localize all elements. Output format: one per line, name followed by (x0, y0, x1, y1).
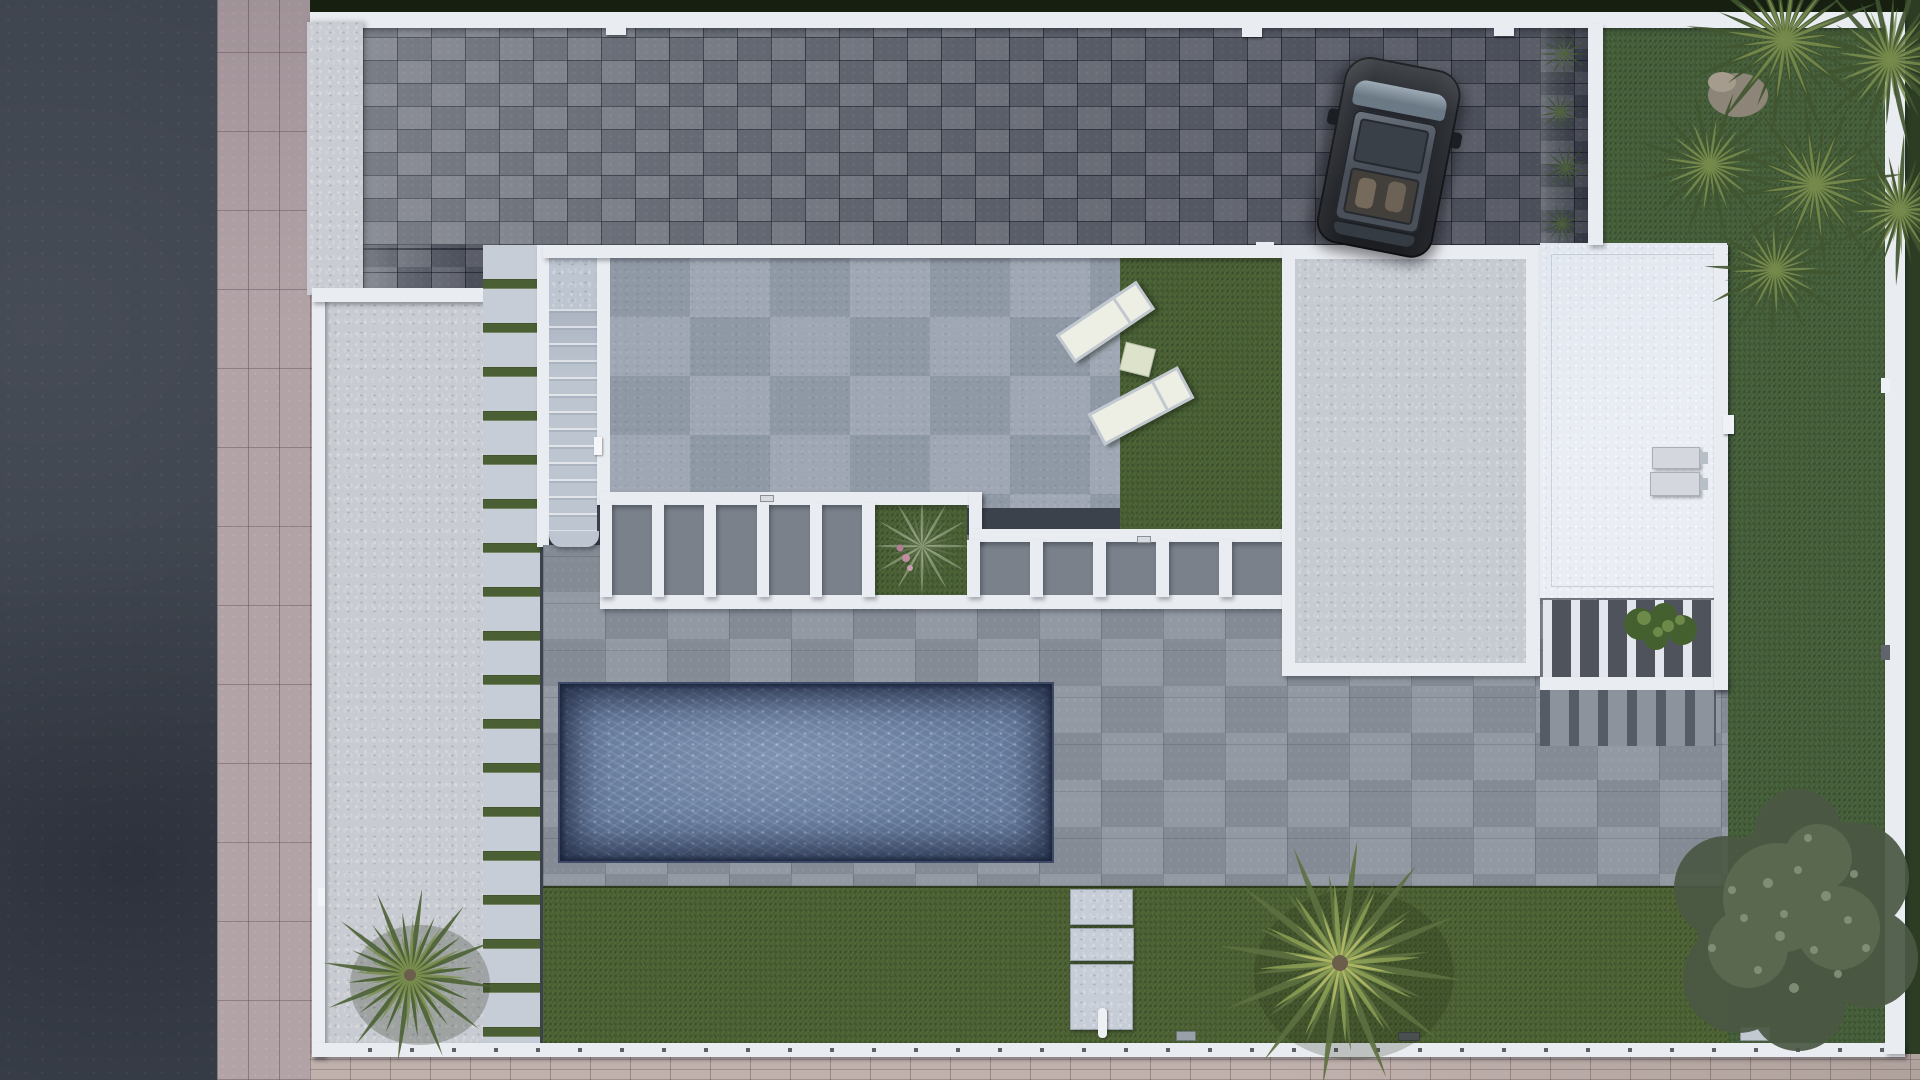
pergola-post (1093, 540, 1106, 597)
driveway-shrub (1536, 28, 1592, 248)
wall-cap (606, 26, 626, 35)
lawn-drain (1176, 1031, 1196, 1041)
pergola-post (600, 503, 612, 597)
ac-unit (1652, 447, 1700, 469)
asphalt-road (0, 0, 217, 1080)
pergola-floor-right (967, 535, 1282, 598)
yucca-palm-cluster (1600, 0, 1920, 300)
roof-terrace (610, 258, 1122, 508)
wall-cap (1494, 27, 1514, 36)
pergola-beam-bottom (600, 595, 1295, 609)
pergola-post (810, 503, 822, 597)
terrace-door-handle (594, 437, 602, 455)
pergola-cap (1137, 536, 1151, 543)
swimming-pool (558, 682, 1054, 863)
pergola-post (967, 540, 980, 597)
garden-tree (1648, 778, 1920, 1068)
pergola-post (1219, 540, 1232, 597)
pergola-post (1030, 540, 1043, 597)
palm-tree-south-west (318, 883, 502, 1067)
wall-cap (1242, 28, 1262, 37)
lawn-south (543, 883, 1728, 1043)
ac-unit (1650, 472, 1700, 496)
garden-faucet (1098, 1008, 1107, 1038)
entrance-pillar (307, 22, 363, 295)
wall-path-east (537, 245, 549, 547)
east-wall-latch (1723, 415, 1734, 434)
pergola-beam-top-right (969, 529, 1295, 542)
ac-pipe (1700, 452, 1708, 464)
house-parapet-east (1714, 245, 1728, 690)
sidewalk-left (217, 0, 312, 1080)
stepping-pad (1070, 928, 1134, 961)
right-wall-latch (1881, 378, 1890, 393)
wall-stairs-east (597, 247, 611, 505)
wall-courtyard-north (312, 288, 483, 302)
lounger-headrest-divider (1113, 298, 1131, 323)
staircase-end (549, 531, 599, 547)
palm-tree-south-center (1210, 833, 1470, 1080)
patio-plants (1612, 596, 1712, 660)
agave-plant (872, 496, 972, 596)
patio-shadow-stripes (1540, 690, 1716, 746)
staircase (549, 309, 597, 535)
pergola-post (1156, 540, 1169, 597)
lounger-headrest-divider (1152, 382, 1169, 410)
stepping-pad (1070, 889, 1133, 925)
pergola-post (704, 503, 716, 597)
aerial-villa-render (0, 0, 1920, 1080)
pergola-cap (760, 495, 774, 502)
gravel-roof (1295, 259, 1526, 663)
pergola-post (652, 503, 664, 597)
driveway-notch (363, 245, 483, 292)
pergola-post (862, 503, 875, 597)
white-roof-inner-line (1551, 254, 1716, 587)
pergola-post (757, 503, 769, 597)
right-wall-latch (1881, 645, 1890, 660)
wall-cap (1256, 242, 1274, 250)
patio-south-beam (1540, 677, 1727, 690)
pergola-floor-left (610, 498, 875, 598)
ac-pipe (1700, 478, 1708, 490)
